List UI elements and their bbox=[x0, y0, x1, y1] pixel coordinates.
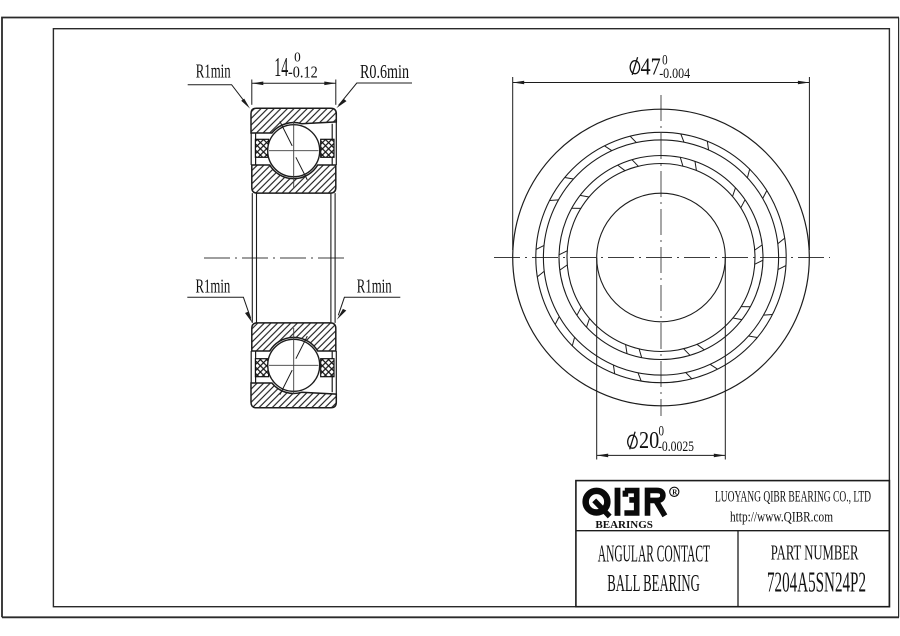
svg-text:R0.6min: R0.6min bbox=[360, 61, 409, 83]
svg-text:47: 47 bbox=[641, 55, 661, 81]
svg-text:7204A5SN24P2: 7204A5SN24P2 bbox=[767, 568, 866, 599]
svg-text:BEARINGS: BEARINGS bbox=[595, 520, 653, 531]
svg-text:R1min: R1min bbox=[196, 60, 231, 82]
svg-text:20: 20 bbox=[639, 428, 659, 454]
svg-text:LUOYANG QIBR BEARING CO., LTD: LUOYANG QIBR BEARING CO., LTD bbox=[715, 488, 871, 505]
svg-text:R1min: R1min bbox=[357, 276, 392, 298]
svg-text:-0.12: -0.12 bbox=[288, 62, 318, 81]
svg-text:PART NUMBER: PART NUMBER bbox=[771, 541, 859, 565]
svg-text:14: 14 bbox=[274, 52, 288, 82]
svg-text:http://www.QIBR.com: http://www.QIBR.com bbox=[730, 510, 833, 526]
svg-text:ANGULAR CONTACT: ANGULAR CONTACT bbox=[598, 541, 710, 567]
svg-text:-0.0025: -0.0025 bbox=[658, 439, 694, 455]
svg-text:R1min: R1min bbox=[196, 276, 231, 298]
svg-text:-0.004: -0.004 bbox=[659, 66, 690, 82]
svg-text:BALL BEARING: BALL BEARING bbox=[607, 571, 700, 597]
svg-text:0: 0 bbox=[659, 423, 665, 439]
